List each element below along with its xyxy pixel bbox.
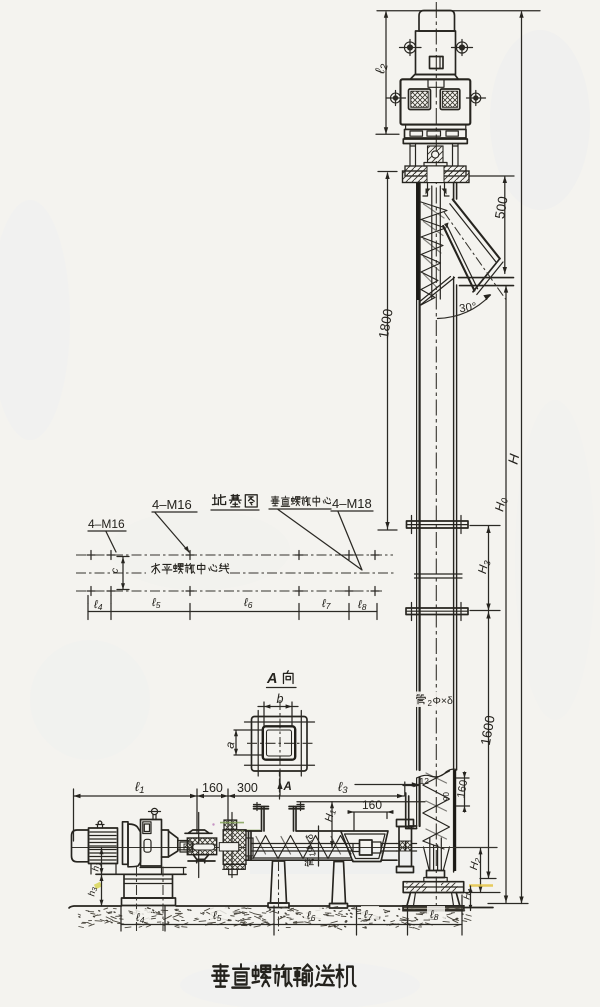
svg-text:ℓ7: ℓ7 (321, 598, 331, 611)
svg-text:30°: 30° (459, 301, 478, 315)
svg-text:Φ×δ: Φ×δ (305, 834, 316, 852)
svg-text:4–M16: 4–M16 (88, 517, 125, 531)
svg-text:ℓ4: ℓ4 (135, 912, 145, 925)
svg-text:ℓ5: ℓ5 (151, 597, 161, 610)
svg-text:ℓ4: ℓ4 (93, 599, 103, 612)
svg-text:4–M16: 4–M16 (152, 497, 192, 512)
svg-text:ℓ7: ℓ7 (363, 909, 373, 922)
svg-text:90: 90 (442, 792, 451, 801)
svg-text:4–M18: 4–M18 (332, 496, 372, 511)
svg-text:ℓ6: ℓ6 (306, 910, 316, 923)
svg-text:160: 160 (362, 798, 382, 812)
svg-text:Φ×δ: Φ×δ (433, 695, 454, 707)
svg-text:ℓ8: ℓ8 (357, 599, 367, 612)
svg-text:A: A (283, 781, 292, 793)
svg-text:ℓ6: ℓ6 (243, 597, 253, 610)
svg-text:ℓ5: ℓ5 (212, 910, 222, 923)
svg-text:A: A (266, 671, 277, 687)
svg-text:ℓ8: ℓ8 (429, 909, 439, 922)
svg-text:12: 12 (420, 776, 430, 786)
svg-text:300: 300 (237, 781, 258, 795)
svg-text:160: 160 (202, 781, 223, 795)
